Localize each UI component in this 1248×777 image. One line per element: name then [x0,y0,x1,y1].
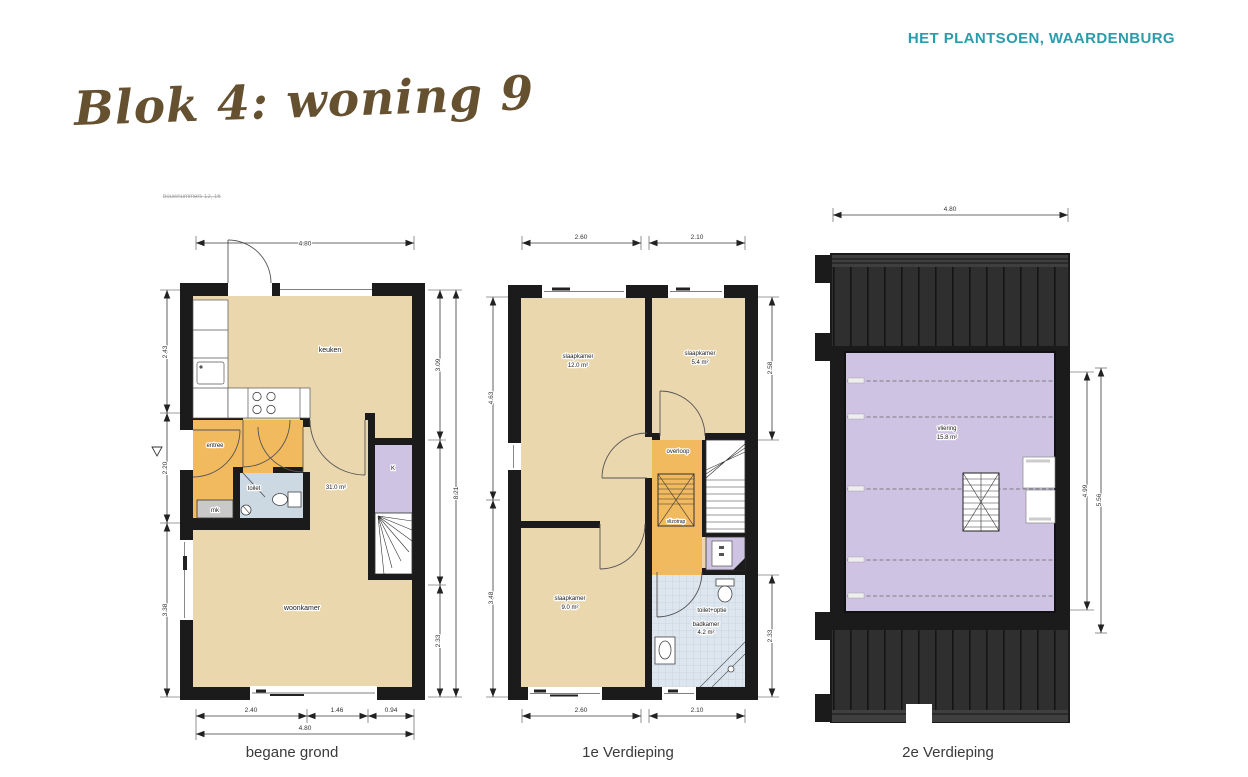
room-label-toilet-optie: toilet+optie [697,608,727,614]
svg-text:2.58: 2.58 [767,361,774,374]
svg-text:1.46: 1.46 [331,707,344,714]
caption-ground: begane grond [246,744,339,761]
svg-text:3.09: 3.09 [435,358,442,371]
room-label-entree: entree [206,443,224,449]
room-label-badkamer: badkamer [693,622,720,628]
caption-first: 1e Verdieping [582,744,674,761]
plan-note: bouwnummers 12, 16 [163,194,221,200]
svg-text:2.33: 2.33 [767,629,774,642]
svg-text:3.48: 3.48 [488,591,495,604]
svg-text:3.38: 3.38 [162,603,169,616]
page: HET PLANTSOEN, WAARDENBURG Blok 4: wonin… [0,0,1248,777]
svg-text:2.10: 2.10 [691,234,704,241]
room-label-vlizotrap: vlizotrap [667,519,686,525]
svg-text:2.33: 2.33 [435,634,442,647]
svg-text:5.56: 5.56 [1096,493,1103,506]
room-label-slaapkamer1-area: 12.0 m² [568,363,588,369]
room-label-woonkamer: woonkamer [283,605,321,612]
room-label-vliering-area: 15.8 m² [937,435,957,441]
svg-text:2.60: 2.60 [575,234,588,241]
caption-second: 2e Verdieping [902,744,994,761]
svg-text:2.10: 2.10 [691,707,704,714]
room-label-badkamer-area: 4.2 m² [697,630,714,636]
room-label-slaapkamer3-area: 9.0 m² [561,605,578,611]
svg-text:2.60: 2.60 [575,707,588,714]
room-label-slaapkamer2: slaapkamer [684,351,715,357]
room-label-keuken: keuken [319,347,342,354]
room-label-vliering: vliering [937,426,956,432]
svg-text:4.80: 4.80 [944,206,957,213]
attic-stair-opening [963,473,999,531]
room-label-slaapkamer1: slaapkamer [562,354,593,360]
room-label-mk: mk [211,508,220,514]
svg-text:2.40: 2.40 [245,707,258,714]
svg-text:4.80: 4.80 [299,725,312,732]
svg-text:4.80: 4.80 [299,241,312,248]
second-floor-plan: vliering 15.8 m² 4.80 4.99 5.56 2e Verdi… [815,206,1107,761]
svg-text:2.43: 2.43 [162,345,169,358]
svg-text:4.99: 4.99 [1082,484,1089,497]
svg-text:0.94: 0.94 [385,707,398,714]
floor-plans-canvas: bouwnummers 12, 16 [0,0,1248,777]
svg-text:4.63: 4.63 [488,391,495,404]
room-label-area: 31.0 m² [326,485,346,491]
svg-text:8.21: 8.21 [453,486,460,499]
room-label-toilet: toilet [248,486,261,492]
room-label-kast: K [391,466,395,472]
room-label-overloop: overloop [666,449,690,455]
room-label-slaapkamer3: slaapkamer [554,596,585,602]
attic-cupboards [1023,457,1055,523]
svg-text:2.20: 2.20 [162,461,169,474]
first-walls-rooms [506,285,758,700]
room-label-slaapkamer2-area: 5.4 m² [691,360,708,366]
entry-marker [152,447,162,456]
first-floor-plan: slaapkamer 12.0 m² slaapkamer 5.4 m² ove… [486,234,779,761]
ground-floor-plan: bouwnummers 12, 16 [152,194,462,761]
